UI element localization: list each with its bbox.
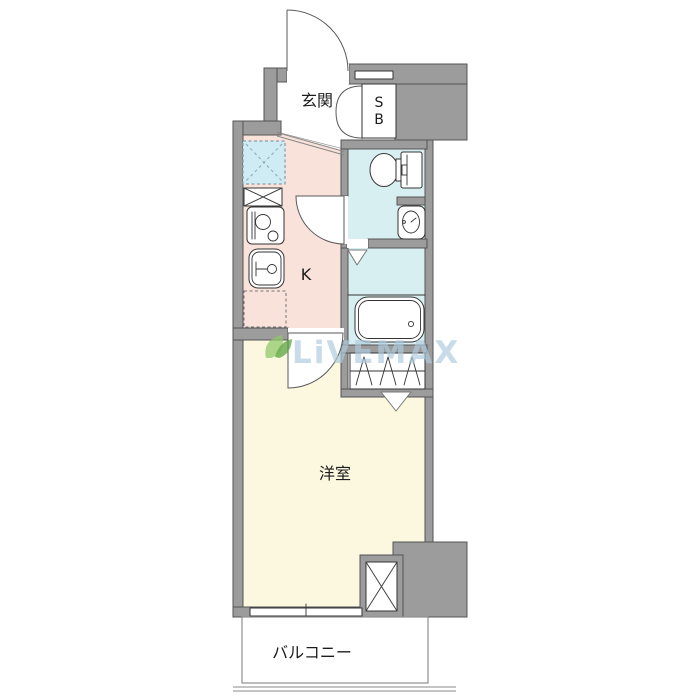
pipe-space-lower [366, 562, 397, 611]
floor-plan-svg: S B [0, 0, 700, 700]
watermark-text: LiVEMAX [292, 335, 460, 371]
wall-bottom-right-block [393, 542, 467, 617]
western-room-label: 洋室 [319, 464, 351, 483]
floor-plan-page: S B [0, 0, 700, 700]
shoe-box-label-s: S [375, 95, 384, 111]
shoe-box-label-b: B [374, 112, 384, 128]
wall-left [233, 121, 243, 617]
gas-stove-fixture [247, 207, 284, 244]
shoe-box [362, 84, 396, 138]
entrance-door-arc [287, 10, 348, 71]
balcony-label: バルコニー [272, 643, 352, 662]
wall-top-right-block [395, 84, 467, 140]
pipe-space-upper [244, 188, 282, 206]
wall-kitchen-wet-lower [341, 244, 348, 397]
kitchen-label: K [301, 265, 312, 284]
window-slot [355, 71, 393, 79]
watermark: LiVEMAX [265, 335, 460, 371]
wall-toilet-top [341, 140, 427, 149]
washbasin-fixture [398, 206, 425, 239]
wall-washbasin-stub [397, 197, 425, 205]
entrance-label: 玄関 [301, 91, 333, 110]
wall-kitchen-wet-upper [341, 149, 348, 196]
entrance-door-opening [287, 64, 349, 84]
kitchen-sink-fixture [249, 249, 284, 288]
bath-door-opening [347, 239, 368, 248]
wall-toilet-bath-right [368, 239, 427, 248]
